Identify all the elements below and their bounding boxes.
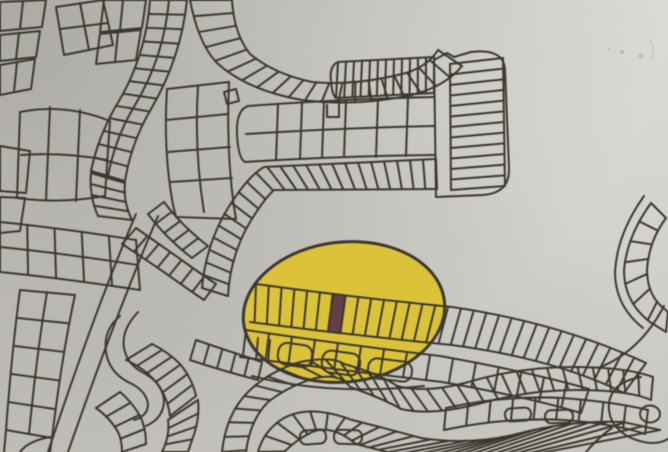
plot-map-photo bbox=[0, 0, 668, 452]
plot-map-canvas bbox=[0, 0, 668, 452]
